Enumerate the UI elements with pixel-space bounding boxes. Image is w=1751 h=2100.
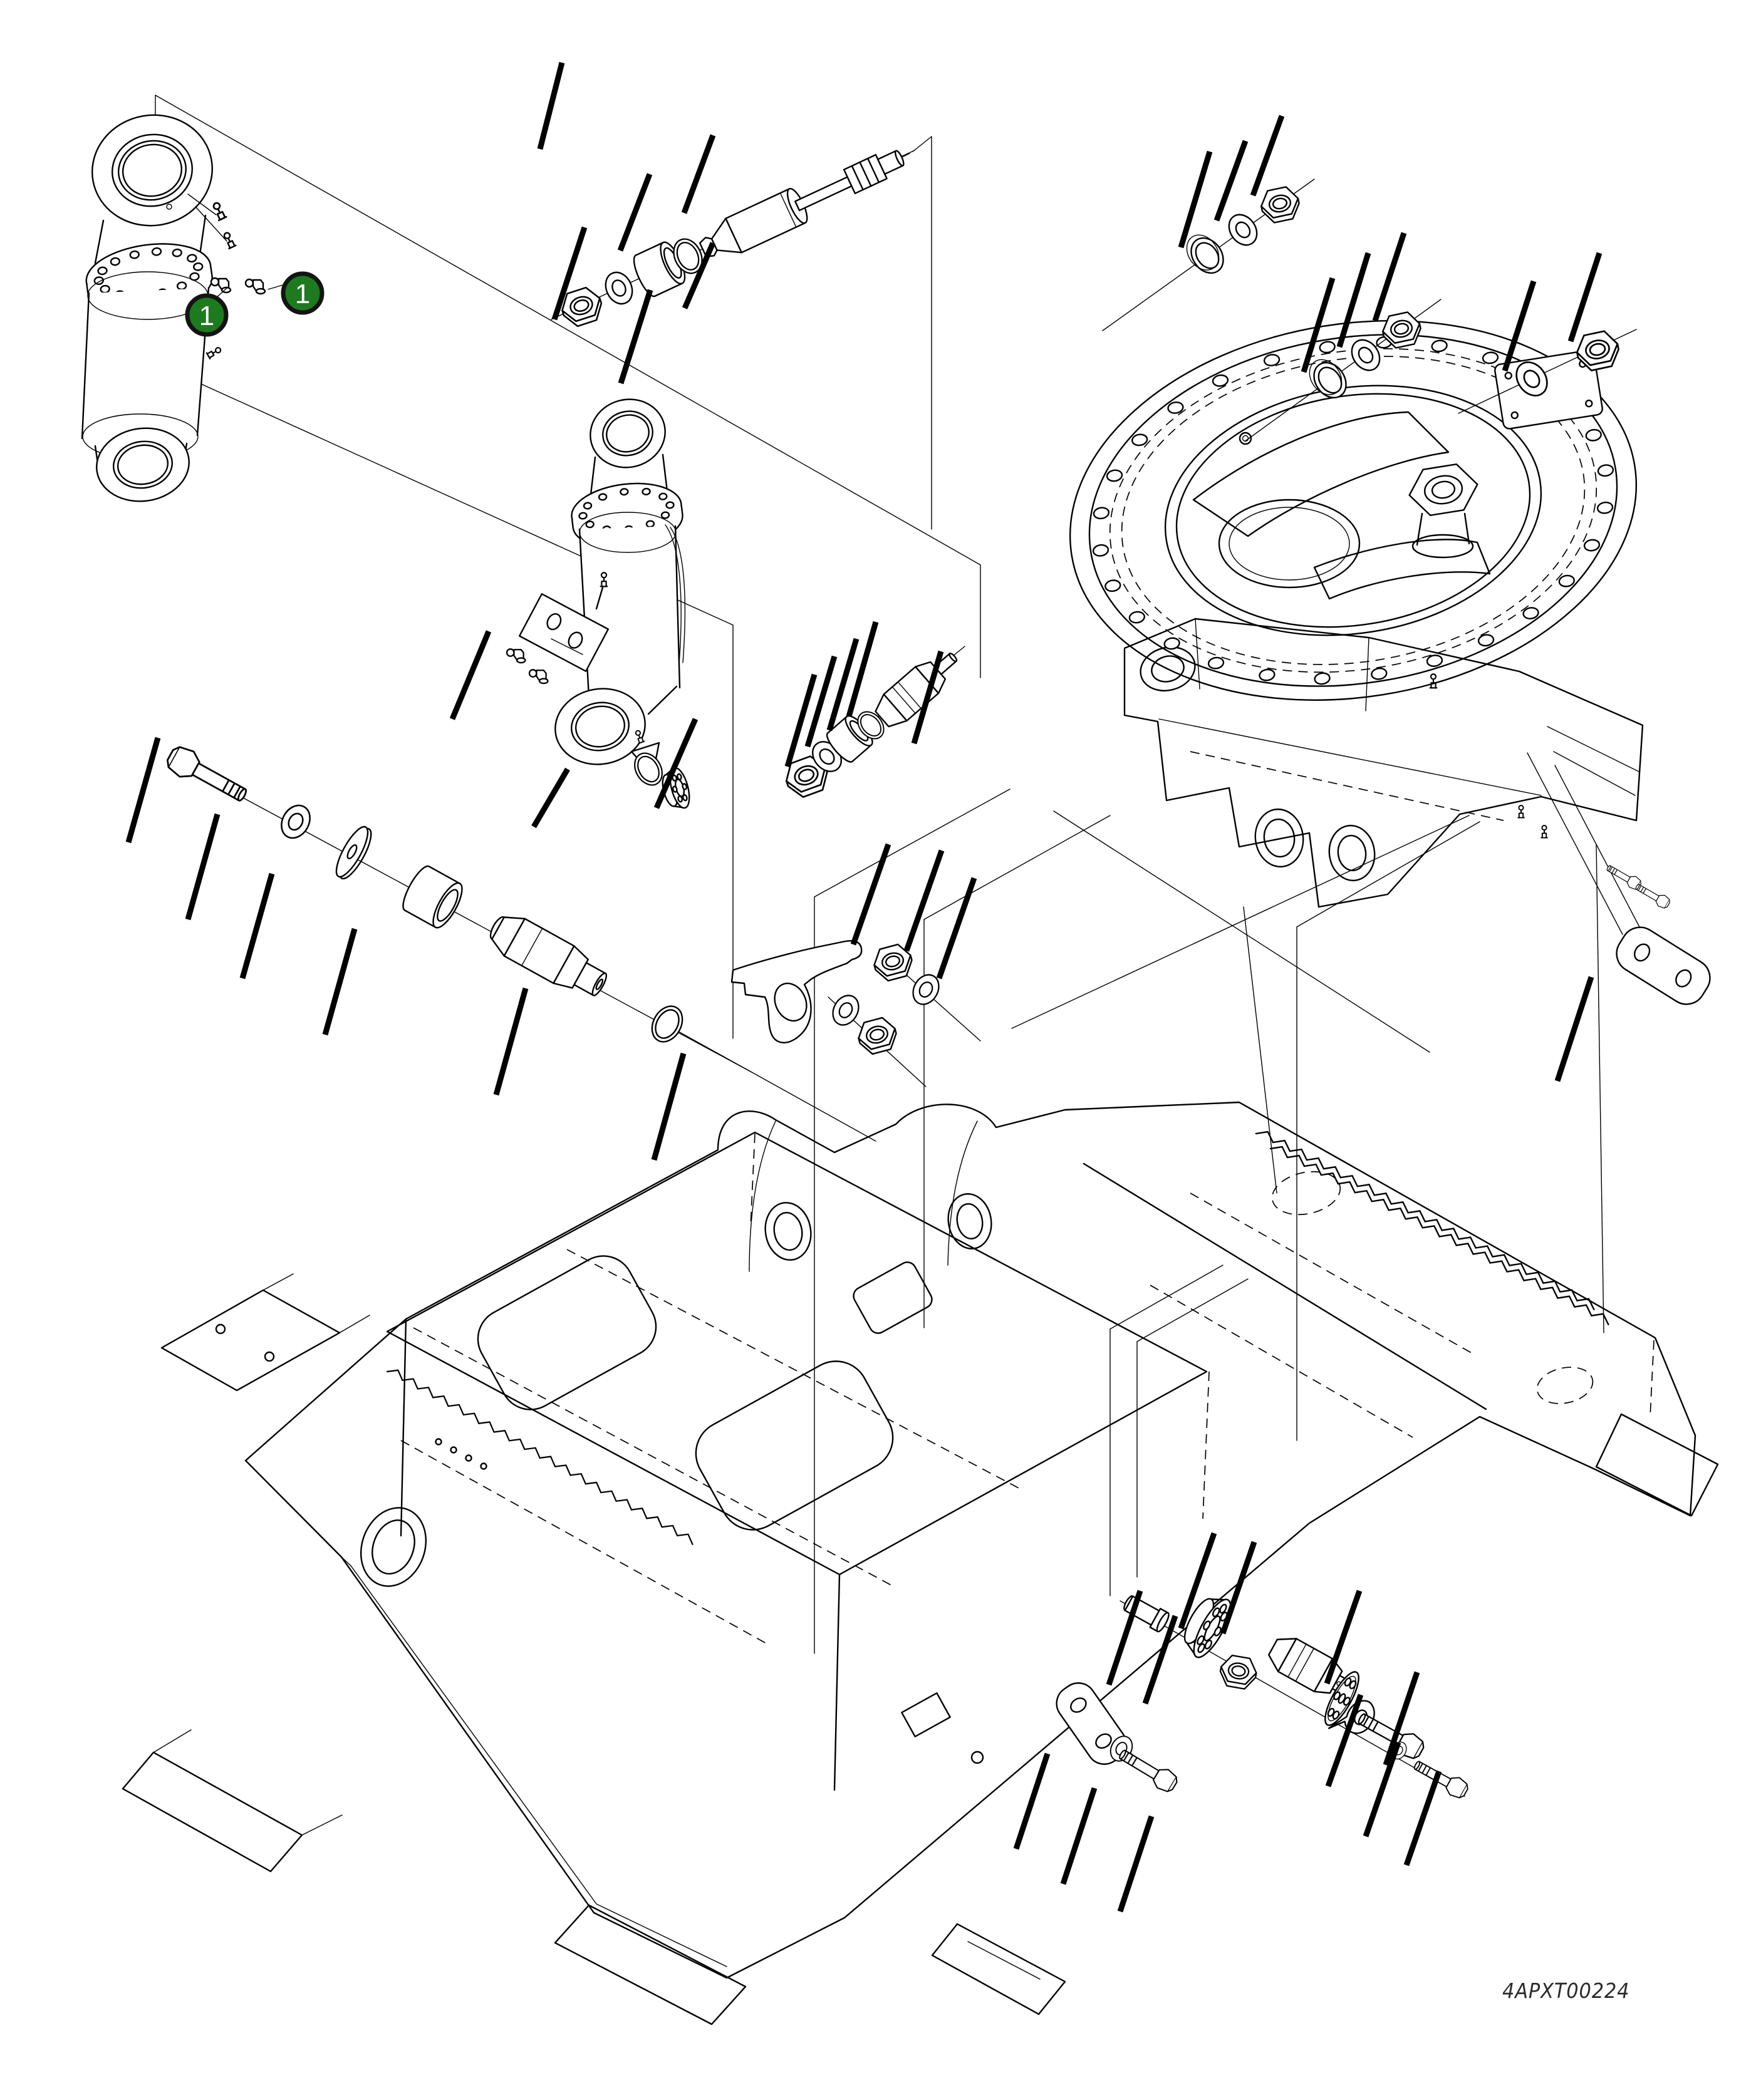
leader-line [325,929,355,1035]
bolt-hole [579,512,587,519]
leader-line [1339,253,1368,347]
bolt-hole [1584,539,1600,552]
body-edge [1547,727,1639,772]
projection-line [1596,844,1604,1333]
leader-line [787,675,814,767]
bolt-hole [172,249,182,257]
bolt-hole [678,796,683,802]
bolt-hole [1319,341,1336,354]
tower-boss [944,1191,995,1252]
drawing-number: 4APXT00224 [1502,1980,1629,2003]
bolt-hole [666,502,674,509]
hidden-edge [401,1441,767,1644]
bearing-bracket-body [1125,619,1643,907]
cylinder-neck [95,220,103,263]
grease-fitting [222,232,236,249]
piston-rod [695,137,918,267]
bolt-hole [1586,428,1602,442]
deck-hole-dashed [1534,1362,1596,1408]
bolt-hole [682,784,687,790]
deck-hole [481,1464,487,1469]
leader-line [654,1053,683,1160]
leader-line [1181,152,1210,247]
bolt-hole [1559,574,1575,587]
leader-line [242,874,272,978]
plate-hole [265,1352,274,1361]
bolt-hole [677,773,682,780]
projection-line [913,137,932,152]
swing-bearing-assembly [1042,281,1664,907]
bolt-hole [1259,668,1275,681]
leader-line [1505,281,1534,371]
cup-washer [1180,228,1230,281]
plate-link-line [263,1274,293,1290]
hex-bolt [1633,881,1671,910]
projection-plane-edge [924,815,1110,919]
elbow-fitting [211,278,231,292]
bolt-hole [194,262,203,271]
leader-line [1327,1591,1359,1684]
rod-end-eye [83,106,221,235]
hex-bolt [164,742,251,809]
leader-line [1217,141,1245,220]
bracket-lug-bore [1252,806,1307,870]
leader-line [621,290,650,383]
bolt-hole [130,251,139,259]
frame-bore [350,1499,437,1595]
bracket-opening [1229,507,1349,580]
clevis-edge [648,686,677,714]
bolt-hole [1598,464,1614,477]
grease-fitting [1430,674,1437,688]
hidden-edge [413,1328,896,1588]
keeper-plate-group [732,844,980,1087]
grease-fitting [207,346,222,358]
cup-washer [1303,353,1353,405]
weld-seam [1256,1127,1597,1310]
bolt-hole [1478,634,1494,647]
bolt-hole [1371,667,1387,680]
frame-wall-line [341,1557,727,1967]
balloon-label: 1 [295,279,310,309]
hex-nut [1259,185,1302,224]
bolt-hole [152,247,161,256]
hex-nut [855,1015,900,1057]
bolt-hole [583,502,591,509]
projection-line [1527,753,1623,934]
bolt-hole [1131,433,1148,447]
bolt-hole [1482,351,1499,365]
leader-line [1571,253,1599,341]
bolt-hole [1208,656,1224,670]
leader-line [1253,116,1282,195]
callout-balloon-2[interactable]: 1 [283,274,322,313]
bolt-hole [177,282,186,290]
leader-line [853,844,888,944]
chain-pivot-pin-centre [781,622,966,800]
keeper-pad [1609,920,1717,1011]
projection-plane-edge [1297,822,1480,927]
flat-washer [601,268,637,308]
bolt-hole [599,494,607,500]
body-hidden-edge [1190,752,1504,820]
chain-pivot-pin-left [128,738,876,1160]
bolt-hole [1129,611,1145,624]
body-edge [1159,719,1541,795]
bolt-hole [98,267,107,275]
hex-bolt [1116,1744,1180,1795]
deck-opening-small [851,1259,935,1336]
elbow-fitting [507,649,525,663]
tail-deck-edge [1084,1164,1486,1409]
bolt-hole [661,512,669,519]
tower-horn [948,1121,977,1265]
leader-line [540,63,562,149]
deck-hole [451,1447,457,1453]
frame-step-grill [1596,1414,1718,1516]
plate-hole [216,1325,225,1333]
bolt-hole [1104,579,1121,592]
frame-deck-border [387,1132,1207,1575]
bolt-hole [646,520,654,527]
hidden-edge [751,1134,755,1228]
leader-line [534,769,568,827]
parts-diagram-canvas: 1 1 [0,0,1751,2100]
flat-washer [1224,209,1263,251]
bolt-hole [1093,544,1109,557]
bolt-hole [659,493,667,500]
bracket-lug-bore [1326,822,1378,883]
bolt-hole [682,795,687,801]
bolt-hole [672,786,677,792]
hidden-edge [1190,1193,1473,1354]
projection-plane-edge [1110,1265,1223,1329]
flat-washer [828,991,863,1030]
leader-line [620,174,650,251]
step-link-line [153,1730,191,1752]
grease-fitting [1518,805,1524,818]
body-edge [1195,619,1200,689]
bracket-opening [1219,500,1359,587]
balloon-label: 1 [199,301,214,331]
bearing-hardware-chains [1103,116,1717,1081]
hub-base [1413,535,1473,557]
body-edge [1366,638,1369,711]
frame-face-hole [901,1693,950,1737]
keeper-plate [732,941,861,1043]
grease-fitting [212,202,226,220]
bolt-hole [1597,501,1613,514]
frame-wall-edge [834,1575,839,1790]
frame-wall-edge [401,1319,406,1536]
callout-balloon-1[interactable]: 1 [187,296,226,334]
bolt-hole [100,285,110,293]
bolt-hole [1431,339,1447,353]
track-frame [123,1102,1718,2024]
frame-face-hole [972,1752,983,1763]
deck-opening [684,1350,905,1541]
o-ring [646,1001,688,1047]
deck-hole [466,1456,472,1461]
bolt-hole [1093,507,1109,520]
bolt-hole [1106,469,1123,482]
leader-line [1366,1742,1398,1836]
bolt-hole [110,257,120,266]
bolt-hole [642,488,650,495]
leader-line [684,135,713,213]
barrel-fill [579,526,680,696]
frame-step-grill [123,1752,302,1871]
frame-bracket [932,1924,1065,2014]
bolt-hole [620,489,628,495]
hex-bolt [1411,1756,1470,1801]
hidden-edge [1150,1285,1413,1437]
assembly-axis [667,1025,876,1141]
hydraulic-cylinder-1 [82,106,265,507]
leader-line [496,988,526,1095]
cover-plate [162,1290,340,1390]
hidden-edge [567,1249,1021,1489]
plate-link-line [340,1315,370,1333]
pivot-pin [871,643,966,732]
bolt-hole [1314,672,1330,685]
leader-line [849,622,876,716]
parts-diagram-page: 1 1 [0,0,1751,2100]
leader-line [939,878,974,978]
pivot-pin [484,907,613,1005]
retainer-disc [331,823,377,882]
leader-line [1223,1542,1254,1633]
projection-line [1244,907,1277,1193]
frame-bracket-line [968,1942,1040,1979]
leader-line [1375,233,1404,321]
leader-line [1063,1788,1094,1884]
frame-step-grill [555,1905,746,2024]
projection-plane-edge [1012,815,1469,1028]
tower-boss [761,1199,816,1263]
hydraulic-cylinder-2 [452,391,695,827]
elbow-fitting [529,670,548,683]
chain-bottom-right [1109,1533,1470,1865]
elbow-fitting [246,279,265,294]
leader-line [1120,1816,1151,1911]
leader-line [452,631,489,719]
weld-seam [1270,1142,1611,1325]
step-link-line [302,1815,342,1835]
chain-pivot-pin-upper [540,63,918,383]
bracket-arm [1193,412,1448,536]
leader-line [128,738,158,842]
grease-fitting [1541,825,1547,838]
projection-line [1555,765,1648,943]
leader-line [1557,977,1591,1081]
chain-bottom-left [1016,1676,1180,1911]
pivot-hub [1406,462,1481,518]
body-edge [1554,752,1635,795]
leader-line [188,814,217,919]
projection-plane-edge [814,789,1010,897]
bushing [398,863,468,932]
leader-line [1406,1771,1439,1865]
rod-end-eye [583,391,673,475]
deck-hole [436,1439,442,1445]
frame-silhouette [246,1102,1695,1978]
hidden-edge [1650,1340,1654,1417]
hidden-edge [1203,1372,1209,1519]
flat-washer [276,800,315,843]
bolt-hole [187,254,197,262]
